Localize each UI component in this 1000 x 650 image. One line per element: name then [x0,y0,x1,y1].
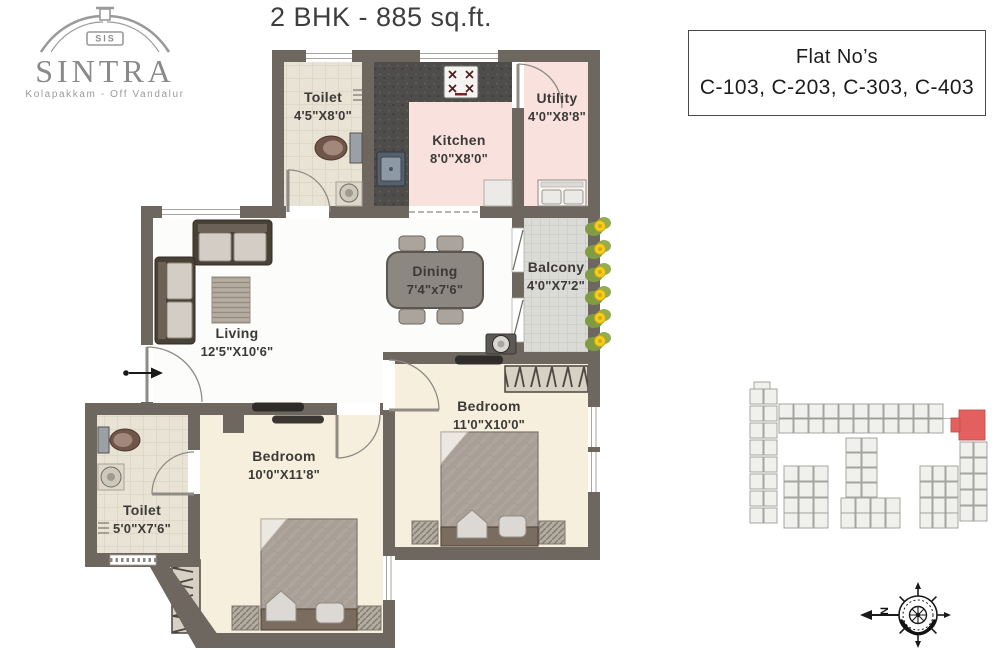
pillow [499,516,526,537]
room-label: Bedroom [252,448,316,464]
washing-machine [538,180,586,206]
page-title: 2 BHK - 885 sq.ft. [230,2,532,33]
tv-unit [272,416,324,424]
stove [444,66,478,98]
dining-chair [399,236,425,251]
room-label: Toilet [123,502,161,518]
tv-unit [455,356,503,365]
rug [212,277,250,323]
window [588,407,600,447]
bed [261,519,357,630]
window [588,452,600,492]
compass-rose: N [860,582,951,648]
kitchen-sink [377,152,405,186]
room-dims: 4'0"X7'2" [527,278,585,293]
key-plan [750,382,987,528]
sofa-left [155,257,195,344]
tv-unit [252,403,304,412]
room-label: Bedroom [457,398,521,414]
wc [315,133,362,163]
room-dims: 4'5"X8'0" [294,108,352,123]
side-table [539,521,565,544]
side-table [357,606,381,630]
bed [441,432,538,546]
room-dims: 12'5"X10'6" [201,344,274,359]
room-label: Kitchen [432,132,485,148]
window [420,50,498,62]
window [162,206,240,218]
room-label: Dining [412,263,457,279]
side-table [412,521,438,544]
fridge [484,180,512,206]
emblem-monogram: SIS [95,34,116,44]
wash-basin [98,464,124,490]
dining-chair [399,309,425,324]
north-arrow: N [860,607,899,620]
louver-vent [110,555,156,565]
north-label: N [879,607,891,615]
key-plan-highlighted-unit [951,410,985,440]
room-label: Utility [537,90,578,106]
brand-logo: SIS SINTRA Kolapakkam - Off Vandalur [10,6,200,100]
brand-tagline: Kolapakkam - Off Vandalur [10,89,200,100]
kitchen-opening [409,206,480,218]
dining-chair [437,309,463,324]
pillow [316,603,344,623]
flat-numbers-list: C-103, C-203, C-303, C-403 [700,76,974,100]
window [383,556,395,600]
room-dims: 7'4"x7'6" [407,282,463,297]
hand-wash-counter [486,334,516,354]
room-dims: 11'0"X10'0" [453,417,525,432]
side-table [232,606,259,630]
room-dims: 5'0"X7'6" [113,521,171,536]
flat-numbers-box: Flat No’s C-103, C-203, C-303, C-403 [688,30,986,116]
room-label: Balcony [528,259,585,275]
dining-chair [437,236,463,251]
brand-emblem-icon: SIS [27,6,183,56]
room-label: Living [215,325,258,341]
wall-stub [223,415,244,433]
dining-table [387,252,483,308]
flat-numbers-heading: Flat No’s [796,46,878,69]
wash-basin [336,182,362,206]
room-dims: 8'0"X8'0" [430,151,488,166]
wc [98,427,140,453]
room-dims: 4'0"X8'8" [528,109,586,124]
brand-name: SINTRA [10,56,200,86]
room-label: Toilet [304,89,342,105]
room-dims: 10'0"X11'8" [248,467,320,482]
floorplan-page: Toilet 4'5"X8'0" Kitchen 8'0"X8'0" Utili… [0,0,1000,650]
window [306,50,352,62]
sofa-top [193,220,272,265]
